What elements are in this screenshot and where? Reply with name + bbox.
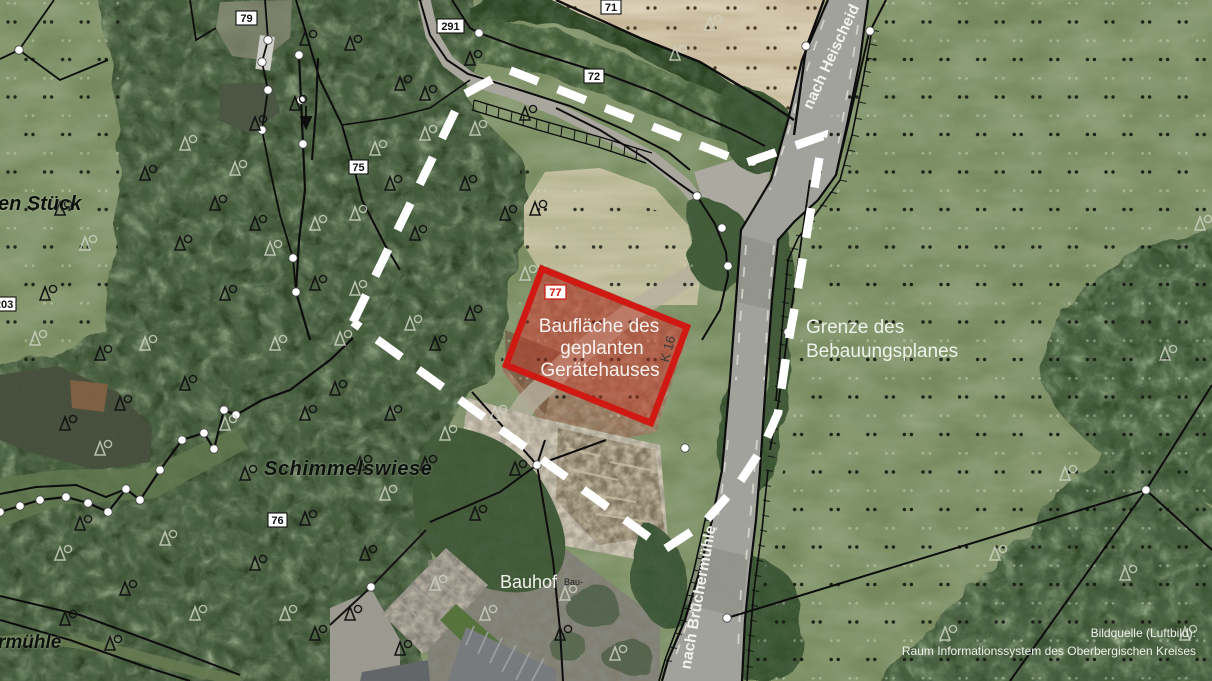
svg-text:76: 76 (271, 515, 283, 527)
svg-text:291: 291 (441, 21, 459, 33)
svg-text:79: 79 (240, 13, 252, 25)
svg-text:203: 203 (0, 299, 13, 311)
svg-text:Bildquelle (Luftbild):: Bildquelle (Luftbild): (1091, 626, 1196, 640)
svg-text:Gerätehauses: Gerätehauses (540, 360, 659, 381)
svg-text:Bau-: Bau- (564, 577, 583, 587)
svg-text:Grenze des: Grenze des (806, 317, 904, 338)
svg-text:77: 77 (549, 287, 561, 299)
svg-text:72: 72 (588, 71, 600, 83)
svg-text:Raum Informationssystem des Ob: Raum Informationssystem des Oberbergisch… (902, 644, 1196, 658)
svg-text:rmühle: rmühle (0, 632, 62, 653)
svg-text:Baufläche des: Baufläche des (539, 316, 659, 337)
svg-text:Bauhof: Bauhof (500, 572, 558, 592)
svg-text:Bebauungsplanes: Bebauungsplanes (806, 341, 958, 362)
svg-text:en Stück: en Stück (0, 193, 82, 215)
svg-text:geplanten: geplanten (560, 338, 643, 359)
svg-text:Schimmelswiese: Schimmelswiese (264, 458, 433, 480)
svg-text:71: 71 (605, 2, 617, 14)
svg-text:75: 75 (352, 162, 364, 174)
